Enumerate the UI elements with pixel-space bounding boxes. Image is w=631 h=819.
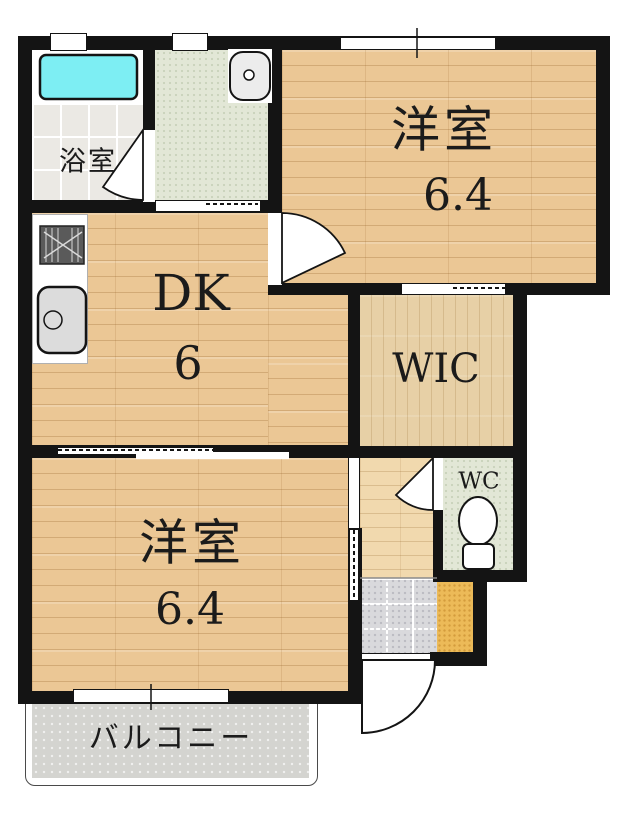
- wall-entrance-south: [430, 652, 487, 666]
- hall-sliding-pocket: [350, 530, 358, 600]
- bedroom-top-window: [340, 37, 496, 50]
- bedroom-bottom-label: 洋室: [139, 519, 245, 568]
- wall-left: [18, 36, 32, 704]
- bathroom-deck: [32, 50, 143, 103]
- bathroom-window: [50, 33, 87, 51]
- wall-wic-south: [360, 446, 513, 458]
- entrance-tile-floor: [360, 578, 437, 653]
- hall-door-opening: [348, 458, 360, 528]
- wic-sliding-door: [402, 284, 505, 294]
- bedroom-top-size: 6.4: [423, 174, 493, 218]
- floor-plan: 浴室 洋室 6.4 DK 6 WIC WC 洋室 6.4 バルコニー: [0, 0, 631, 819]
- dk-sliding-door-panel-b: [136, 452, 289, 459]
- wc-label: WC: [458, 471, 499, 494]
- hallway-floor: [360, 458, 433, 578]
- dk-floor-east: [268, 295, 348, 445]
- dk-label: DK: [152, 268, 229, 318]
- bedroom-top-label: 洋室: [391, 106, 497, 155]
- bedroom-top-door-jamb: [268, 213, 282, 285]
- bedroom-top-floor: [282, 50, 596, 283]
- balcony-label: バルコニー: [89, 724, 253, 754]
- wall-wic-west: [348, 295, 360, 445]
- entrance-threshold: [362, 653, 430, 663]
- bedroom-bottom-size: 6.4: [155, 588, 225, 632]
- bedroom-bottom-window: [73, 689, 229, 703]
- washroom-sliding-door: [156, 201, 260, 211]
- wc-door-jamb: [433, 458, 443, 510]
- wall-right-upper: [596, 36, 610, 295]
- bathroom-door-jamb: [143, 130, 155, 202]
- wall-top: [18, 36, 610, 50]
- washroom-floor: [155, 50, 268, 202]
- bathroom-label: 浴室: [59, 149, 117, 176]
- entrance-step: [437, 578, 473, 653]
- wall-wash-bedroom-divider: [268, 50, 282, 213]
- kitchen-counter: [32, 214, 88, 364]
- dk-size: 6: [173, 340, 202, 386]
- wall-wic-east: [513, 283, 527, 582]
- washroom-window: [172, 33, 208, 51]
- bedroom-bottom-floor: [32, 458, 348, 691]
- wic-label: WIC: [392, 349, 480, 389]
- entrance-door-swing: [362, 660, 435, 733]
